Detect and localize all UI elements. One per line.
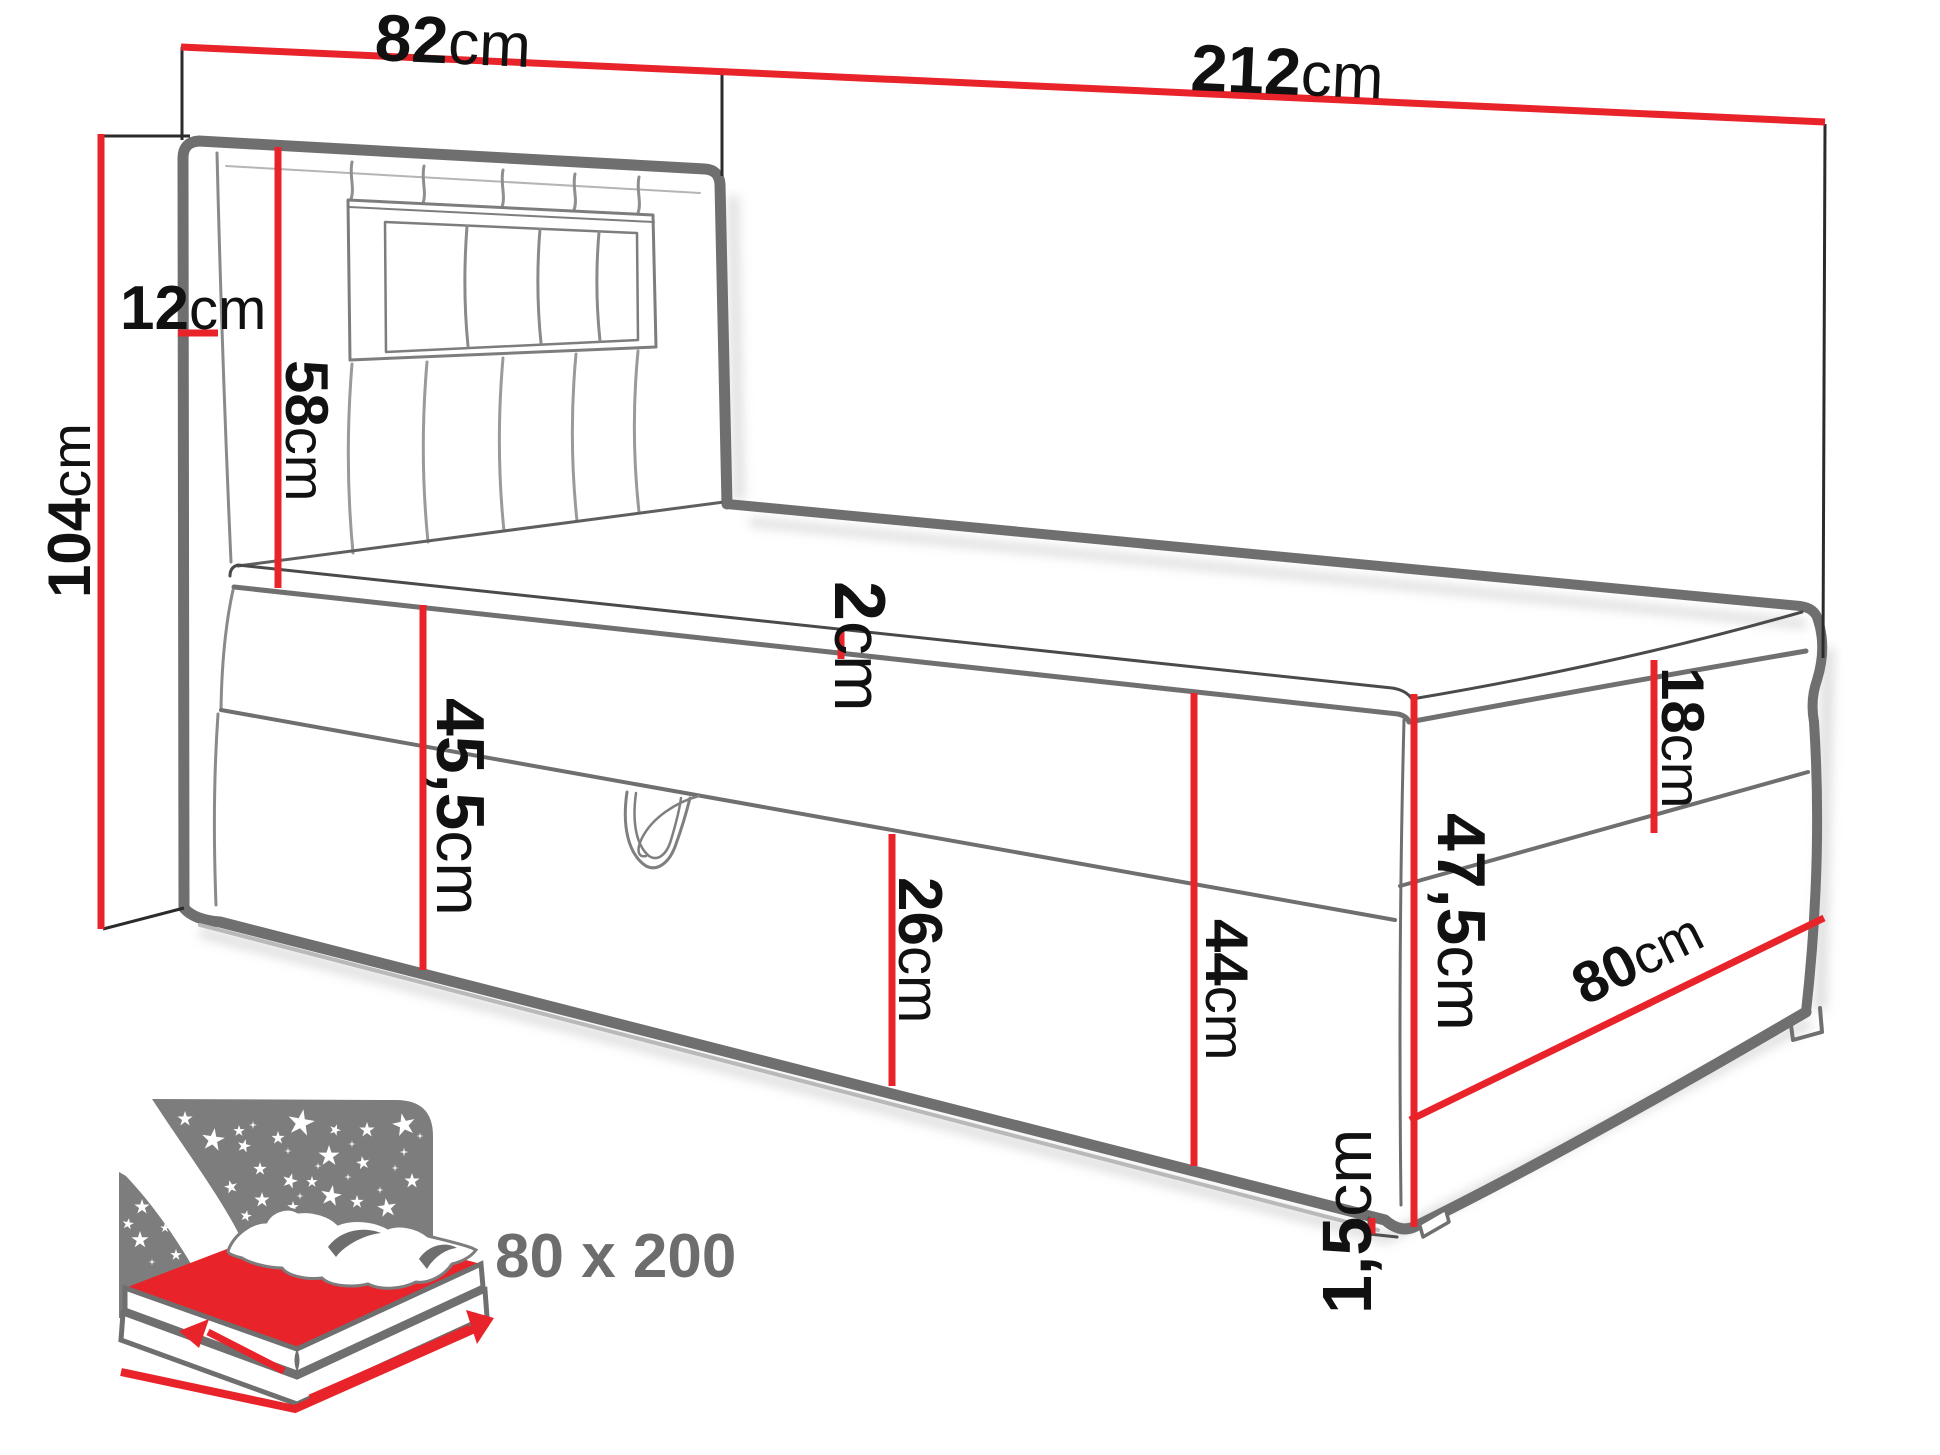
- svg-text:58cm: 58cm: [273, 360, 340, 501]
- svg-text:18cm: 18cm: [1649, 667, 1716, 808]
- svg-text:82cm: 82cm: [373, 0, 532, 81]
- svg-text:45,5cm: 45,5cm: [422, 698, 498, 916]
- svg-text:47,5cm: 47,5cm: [1423, 813, 1499, 1031]
- svg-text:26cm: 26cm: [885, 877, 954, 1023]
- svg-text:104cm: 104cm: [36, 423, 103, 598]
- svg-text:12cm: 12cm: [120, 274, 266, 343]
- svg-text:212cm: 212cm: [1189, 30, 1385, 113]
- svg-text:44cm: 44cm: [1193, 919, 1260, 1060]
- svg-text:2cm: 2cm: [819, 581, 899, 712]
- svg-text:1,5cm: 1,5cm: [1308, 1129, 1386, 1314]
- svg-text:80 x 200: 80 x 200: [495, 1222, 736, 1291]
